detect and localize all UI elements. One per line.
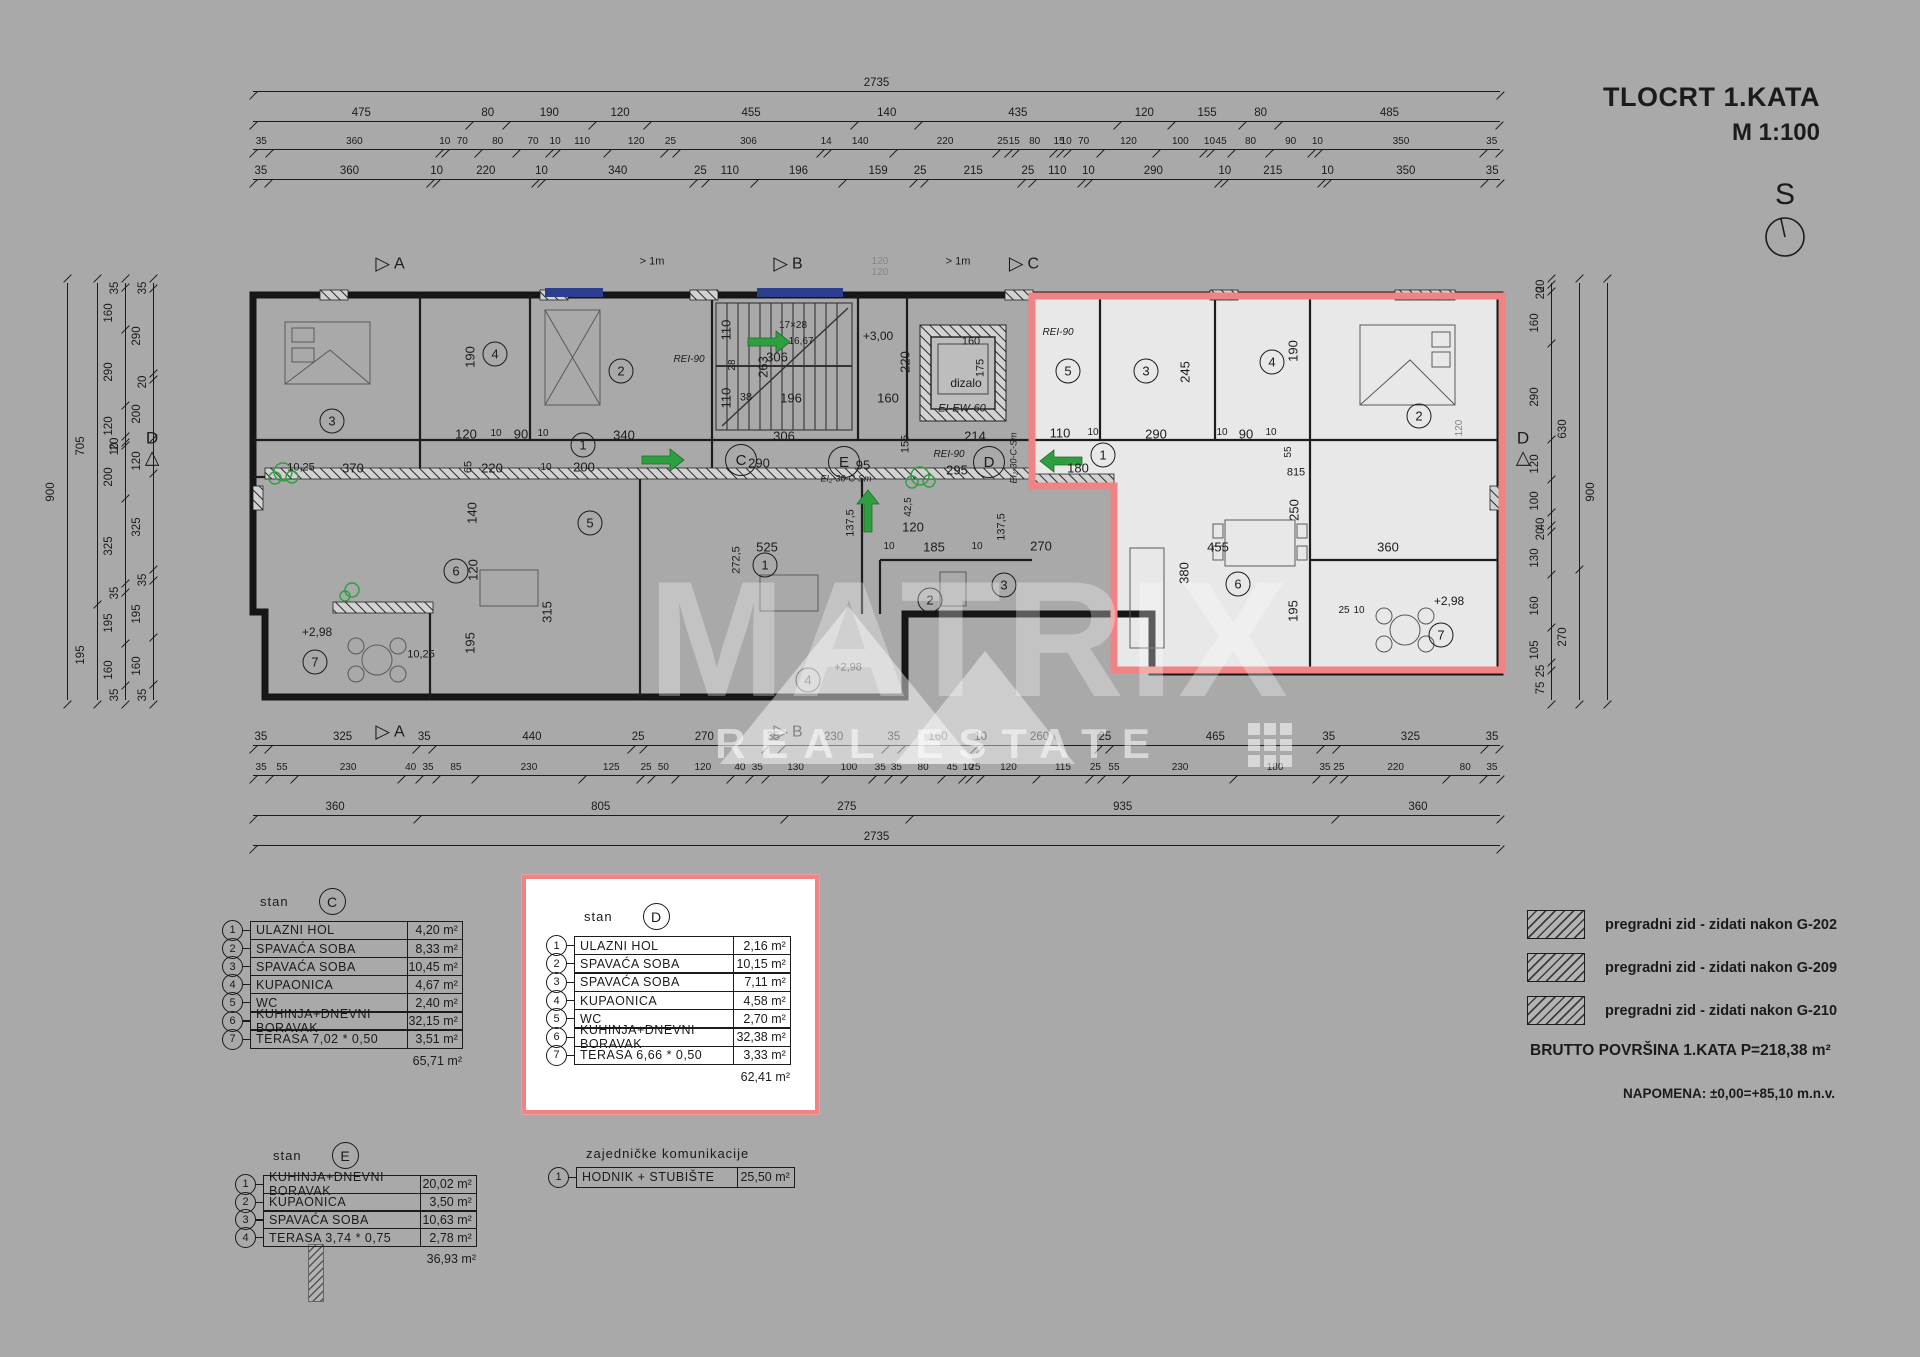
table-total: 65,71 m² bbox=[222, 1054, 462, 1068]
sheet-title: TLOCRT 1.KATA bbox=[1603, 82, 1820, 113]
room-number: 2 bbox=[918, 588, 943, 613]
plan-label: 160 bbox=[877, 392, 899, 405]
table-stan-d: stanD1ULAZNI HOL2,16 m²2SPAVAĆA SOBA10,1… bbox=[522, 875, 819, 1114]
plan-label: REI-90 bbox=[673, 355, 704, 365]
room-name-cell: KUHINJA+DNEVNI BORAVAK bbox=[250, 1011, 408, 1030]
section-marker: D△ bbox=[1516, 429, 1531, 468]
compass-icon bbox=[1762, 212, 1808, 258]
room-number: 7 bbox=[1429, 623, 1454, 648]
plan-label: 360 bbox=[1377, 541, 1399, 554]
note-label: NAPOMENA: ±0,00=+85,10 m.n.v. bbox=[1623, 1086, 1835, 1101]
plan-label: 110 bbox=[720, 388, 733, 409]
plan-label: 155 bbox=[901, 435, 912, 453]
room-name-cell: HODNIK + STUBIŠTE bbox=[576, 1167, 738, 1188]
section-triangle-icon: △ bbox=[1516, 449, 1531, 468]
room-number: 1 bbox=[1091, 443, 1116, 468]
room-number: 2 bbox=[1407, 404, 1432, 429]
plan-label: 137,5 bbox=[846, 509, 857, 537]
summary-block: BRUTTO POVRŠINA 1.KATA P=218,38 m² NAPOM… bbox=[1530, 1042, 1835, 1101]
legend-item: pregradni zid - zidati nakon G-209 bbox=[1527, 953, 1837, 982]
row-connector bbox=[243, 1039, 250, 1040]
plan-label: 55 bbox=[1284, 446, 1294, 457]
room-area-cell: 4,58 m² bbox=[733, 991, 791, 1011]
row-connector bbox=[256, 1237, 263, 1238]
table-row: 4KUPAONICA4,58 m² bbox=[546, 991, 791, 1011]
room-area-cell: 7,11 m² bbox=[733, 972, 791, 992]
row-connector bbox=[567, 963, 574, 964]
room-area-cell: 2,40 m² bbox=[407, 993, 463, 1012]
section-letter: B bbox=[792, 723, 803, 741]
plan-label: 120 bbox=[1455, 420, 1465, 437]
row-number-badge: 7 bbox=[546, 1045, 567, 1066]
plan-label: 16,67 bbox=[788, 337, 813, 347]
table-row: 2SPAVAĆA SOBA10,15 m² bbox=[546, 954, 791, 974]
room-number: 4 bbox=[796, 668, 821, 693]
plan-label: 10 bbox=[1216, 428, 1227, 438]
plan-label: 120 bbox=[902, 521, 924, 534]
section-circle: E bbox=[828, 446, 860, 478]
row-connector bbox=[567, 982, 574, 983]
plan-label: 272,5 bbox=[732, 546, 743, 574]
table-row: 2KUPAONICA3,50 m² bbox=[235, 1193, 477, 1212]
table-title: stan bbox=[260, 894, 289, 909]
sheet-scale: M 1:100 bbox=[1603, 119, 1820, 147]
room-area-cell: 25,50 m² bbox=[737, 1167, 795, 1188]
plan-label: +2,98 bbox=[1434, 595, 1464, 607]
row-number-badge: 7 bbox=[222, 1029, 243, 1050]
plan-label: 10 bbox=[1087, 428, 1098, 438]
room-name-cell: SPAVAĆA SOBA bbox=[263, 1210, 421, 1229]
legend-item: pregradni zid - zidati nakon G-202 bbox=[1527, 910, 1837, 939]
section-triangle-icon: ▷ bbox=[1009, 255, 1024, 274]
table-row: 7TERASA 6,66 * 0,503,33 m² bbox=[546, 1046, 791, 1066]
room-name-cell: KUHINJA+DNEVNI BORAVAK bbox=[263, 1175, 421, 1194]
room-number: 3 bbox=[1134, 359, 1159, 384]
gross-area-label: BRUTTO POVRŠINA 1.KATA P=218,38 m² bbox=[1530, 1042, 1835, 1060]
room-area-cell: 2,78 m² bbox=[420, 1228, 477, 1247]
section-marker: D△ bbox=[145, 429, 160, 468]
plan-label: 120 bbox=[872, 257, 889, 267]
table-title: stan bbox=[584, 909, 613, 924]
plan-label: 525 bbox=[756, 541, 778, 554]
room-name-cell: SPAVAĆA SOBA bbox=[574, 972, 734, 992]
table-stan-c: stanC1ULAZNI HOL4,20 m²2SPAVAĆA SOBA8,33… bbox=[222, 888, 463, 1068]
legend-label: pregradni zid - zidati nakon G-210 bbox=[1605, 1003, 1837, 1019]
section-marker: ▷B bbox=[773, 723, 802, 742]
room-number: 4 bbox=[1260, 350, 1285, 375]
row-connector bbox=[567, 1055, 574, 1056]
plan-label: 120 bbox=[455, 428, 477, 441]
plan-label: 110 bbox=[720, 320, 733, 341]
plan-label: 220 bbox=[899, 351, 912, 373]
north-compass: S bbox=[1762, 178, 1808, 263]
room-area-cell: 4,20 m² bbox=[407, 921, 463, 940]
section-letter: D bbox=[1517, 429, 1529, 449]
table-row: 4TERASA 3,74 * 0,752,78 m² bbox=[235, 1228, 477, 1247]
plan-label: 10 bbox=[971, 542, 982, 552]
plan-label: dizalo bbox=[950, 377, 981, 389]
room-area-cell: 32,15 m² bbox=[407, 1011, 463, 1030]
plan-label: 370 bbox=[342, 462, 364, 475]
table-row: 3SPAVAĆA SOBA10,45 m² bbox=[222, 957, 463, 976]
section-marker: ▷B bbox=[773, 255, 802, 274]
room-name-cell: SPAVAĆA SOBA bbox=[574, 954, 734, 974]
apartment-letter-badge: D bbox=[643, 903, 670, 930]
section-marker: ▷A bbox=[375, 255, 404, 274]
plan-label: 10 bbox=[490, 429, 501, 439]
plan-label: 196 bbox=[780, 392, 802, 405]
table-row: 1ULAZNI HOL2,16 m² bbox=[546, 936, 791, 956]
room-number: 3 bbox=[992, 573, 1017, 598]
plan-label: 185 bbox=[923, 541, 945, 554]
plan-label: REI-90 bbox=[933, 450, 964, 460]
table-row: 1KUHINJA+DNEVNI BORAVAK20,02 m² bbox=[235, 1175, 477, 1194]
room-area-cell: 3,50 m² bbox=[420, 1193, 477, 1212]
plan-label: 10 bbox=[1353, 606, 1364, 616]
room-area-cell: 20,02 m² bbox=[420, 1175, 477, 1194]
legend-label: pregradni zid - zidati nakon G-209 bbox=[1605, 960, 1837, 976]
table-row: 1ULAZNI HOL4,20 m² bbox=[222, 921, 463, 940]
table-row: 1HODNIK + STUBIŠTE25,50 m² bbox=[548, 1167, 795, 1188]
plan-label: 306 bbox=[773, 430, 795, 443]
plan-label: 65 bbox=[464, 461, 475, 473]
plan-label: 10 bbox=[537, 429, 548, 439]
table-total: 36,93 m² bbox=[235, 1252, 476, 1266]
plan-label: > 1m bbox=[946, 257, 971, 268]
plan-label: REI-90 bbox=[1042, 328, 1073, 338]
room-area-cell: 3,33 m² bbox=[733, 1046, 791, 1066]
table-title: stan bbox=[273, 1148, 302, 1163]
row-connector bbox=[567, 945, 574, 946]
plan-label: 295 bbox=[946, 464, 968, 477]
legend-label: pregradni zid - zidati nakon G-202 bbox=[1605, 917, 1837, 933]
plan-label: 214 bbox=[964, 430, 986, 443]
room-name-cell: KUHINJA+DNEVNI BORAVAK bbox=[574, 1027, 734, 1047]
section-triangle-icon: ▷ bbox=[773, 255, 788, 274]
plan-label: 815 bbox=[1287, 468, 1305, 479]
room-name-cell: TERASA 6,66 * 0,50 bbox=[574, 1046, 734, 1066]
plan-label: 160 bbox=[962, 337, 980, 348]
room-number: 2 bbox=[609, 359, 634, 384]
hatch-swatch-icon bbox=[1527, 953, 1585, 982]
table-row: 6KUHINJA+DNEVNI BORAVAK32,15 m² bbox=[222, 1011, 463, 1030]
room-number: 1 bbox=[753, 553, 778, 578]
plan-label: 137,5 bbox=[997, 513, 1008, 541]
room-number: 4 bbox=[483, 342, 508, 367]
plan-label: 200 bbox=[573, 461, 595, 474]
plan-label: 42,5 bbox=[904, 497, 914, 516]
table-row: 3SPAVAĆA SOBA7,11 m² bbox=[546, 972, 791, 992]
plan-label: 455 bbox=[1207, 541, 1229, 554]
room-number: 5 bbox=[578, 511, 603, 536]
plan-label: 90 bbox=[1239, 428, 1253, 441]
plan-label: 38 bbox=[740, 393, 752, 404]
room-area-cell: 2,70 m² bbox=[733, 1009, 791, 1029]
room-area-cell: 10,45 m² bbox=[407, 957, 463, 976]
row-connector bbox=[256, 1184, 263, 1185]
section-letter: D bbox=[146, 429, 158, 449]
plan-label: 10,25 bbox=[287, 463, 315, 474]
plan-label: 270 bbox=[1030, 540, 1052, 553]
plan-label: +2,98 bbox=[834, 663, 862, 674]
row-connector bbox=[243, 984, 250, 985]
row-connector bbox=[256, 1219, 263, 1220]
table-row: 2SPAVAĆA SOBA8,33 m² bbox=[222, 939, 463, 958]
room-name-cell: KUPAONICA bbox=[574, 991, 734, 1011]
room-name-cell: KUPAONICA bbox=[250, 975, 408, 994]
room-name-cell: TERASA 3,74 * 0,75 bbox=[263, 1228, 421, 1247]
plan-label: 250 bbox=[1288, 499, 1301, 521]
row-connector bbox=[243, 930, 250, 931]
room-area-cell: 8,33 m² bbox=[407, 939, 463, 958]
plan-label: 380 bbox=[1178, 562, 1191, 584]
room-area-cell: 10,63 m² bbox=[420, 1210, 477, 1229]
room-number: 3 bbox=[320, 409, 345, 434]
room-name-cell: ULAZNI HOL bbox=[574, 936, 734, 956]
room-number: 6 bbox=[1226, 572, 1251, 597]
plan-label: 110 bbox=[1050, 427, 1071, 440]
section-circle: C bbox=[725, 444, 757, 476]
table-header: zajedničke komunikacije bbox=[586, 1146, 795, 1161]
row-connector bbox=[243, 966, 250, 967]
plan-label: 90 bbox=[514, 428, 528, 441]
table-title: zajedničke komunikacije bbox=[586, 1146, 749, 1161]
plan-label: 140 bbox=[466, 502, 479, 524]
legend-item: pregradni zid - zidati nakon G-210 bbox=[1527, 996, 1837, 1025]
hatch-swatch-icon bbox=[1527, 996, 1585, 1025]
table-header: stanC bbox=[260, 888, 463, 915]
plan-label: 175 bbox=[976, 359, 987, 377]
table-row: 4KUPAONICA4,67 m² bbox=[222, 975, 463, 994]
row-connector bbox=[243, 1020, 250, 1021]
row-connector bbox=[567, 1018, 574, 1019]
row-connector bbox=[567, 1037, 574, 1038]
room-number: 1 bbox=[571, 433, 596, 458]
room-area-cell: 4,67 m² bbox=[407, 975, 463, 994]
compass-label: S bbox=[1762, 178, 1808, 212]
plan-label: 315 bbox=[541, 601, 554, 623]
plan-label: 340 bbox=[613, 429, 635, 442]
plan-label: EI-EW-60 bbox=[938, 404, 985, 415]
legend: pregradni zid - zidati nakon G-202pregra… bbox=[1527, 910, 1837, 1039]
room-name-cell: ULAZNI HOL bbox=[250, 921, 408, 940]
plan-label: +3,00 bbox=[863, 330, 893, 342]
plan-label: 190 bbox=[464, 346, 477, 368]
plan-label: 180 bbox=[1067, 462, 1089, 475]
row-connector bbox=[256, 1202, 263, 1203]
table-header: stanD bbox=[584, 903, 791, 930]
plan-label: 195 bbox=[464, 632, 477, 654]
row-connector bbox=[569, 1177, 576, 1178]
row-connector bbox=[567, 1000, 574, 1001]
plan-label: 245 bbox=[1179, 361, 1192, 383]
plan-label: 120 bbox=[872, 268, 889, 278]
row-connector bbox=[243, 1002, 250, 1003]
room-area-cell: 3,51 m² bbox=[407, 1029, 463, 1048]
section-triangle-icon: △ bbox=[145, 449, 160, 468]
plan-label: EI₂-30-C-Sm bbox=[1010, 433, 1019, 484]
room-area-cell: 32,38 m² bbox=[733, 1027, 791, 1047]
plan-label: > 1m bbox=[640, 257, 665, 268]
table-row: 3SPAVAĆA SOBA10,63 m² bbox=[235, 1210, 477, 1229]
section-circle: D bbox=[973, 446, 1005, 478]
section-triangle-icon: ▷ bbox=[773, 723, 788, 742]
floor-plan-sheet: { "title": {"line1": "TLOCRT 1.KATA", "l… bbox=[0, 0, 1920, 1357]
row-connector bbox=[243, 948, 250, 949]
room-name-cell: KUPAONICA bbox=[263, 1193, 421, 1212]
table-total: 62,41 m² bbox=[546, 1070, 790, 1084]
room-name-cell: SPAVAĆA SOBA bbox=[250, 957, 408, 976]
plan-label: 190 bbox=[1287, 340, 1300, 362]
section-marker: ▷A bbox=[375, 723, 404, 742]
room-number: 6 bbox=[444, 559, 469, 584]
apartment-letter-badge: C bbox=[319, 888, 346, 915]
plan-label: 10 bbox=[1265, 428, 1276, 438]
plan-label: 220 bbox=[481, 462, 503, 475]
apartment-letter-badge: E bbox=[332, 1142, 359, 1169]
table-row: 7TERASA 7,02 * 0,503,51 m² bbox=[222, 1029, 463, 1048]
section-letter: A bbox=[394, 723, 405, 741]
room-area-cell: 10,15 m² bbox=[733, 954, 791, 974]
room-name-cell: TERASA 7,02 * 0,50 bbox=[250, 1029, 408, 1048]
section-letter: C bbox=[1028, 255, 1040, 273]
plan-label: 263 bbox=[757, 356, 770, 378]
section-letter: B bbox=[792, 255, 803, 273]
plan-label: 195 bbox=[1287, 600, 1300, 622]
room-number: 5 bbox=[1056, 359, 1081, 384]
table-row: 6KUHINJA+DNEVNI BORAVAK32,38 m² bbox=[546, 1027, 791, 1047]
section-letter: A bbox=[394, 255, 405, 273]
section-marker: ▷C bbox=[1009, 255, 1039, 274]
hatch-swatch-icon bbox=[1527, 910, 1585, 939]
table-header: stanE bbox=[273, 1142, 477, 1169]
table-common: zajedničke komunikacije1HODNIK + STUBIŠT… bbox=[548, 1146, 795, 1188]
plan-label: 10,25 bbox=[407, 650, 435, 661]
plan-label: 28 bbox=[728, 359, 738, 370]
room-number: 7 bbox=[303, 650, 328, 675]
plan-label: 17×28 bbox=[779, 321, 807, 331]
row-number-badge: 1 bbox=[548, 1167, 569, 1188]
room-name-cell: SPAVAĆA SOBA bbox=[250, 939, 408, 958]
section-triangle-icon: ▷ bbox=[375, 723, 390, 742]
section-triangle-icon: ▷ bbox=[375, 255, 390, 274]
table-stan-e: stanE1KUHINJA+DNEVNI BORAVAK20,02 m²2KUP… bbox=[235, 1142, 477, 1266]
plan-label: 290 bbox=[1145, 428, 1167, 441]
row-number-badge: 4 bbox=[235, 1227, 256, 1248]
plan-label: +2,98 bbox=[302, 626, 332, 638]
room-area-cell: 2,16 m² bbox=[733, 936, 791, 956]
plan-label: 10 bbox=[540, 463, 551, 473]
plan-label: 25 bbox=[1338, 606, 1349, 616]
plan-label: 10 bbox=[883, 542, 894, 552]
title-block: TLOCRT 1.KATA M 1:100 bbox=[1603, 82, 1820, 147]
